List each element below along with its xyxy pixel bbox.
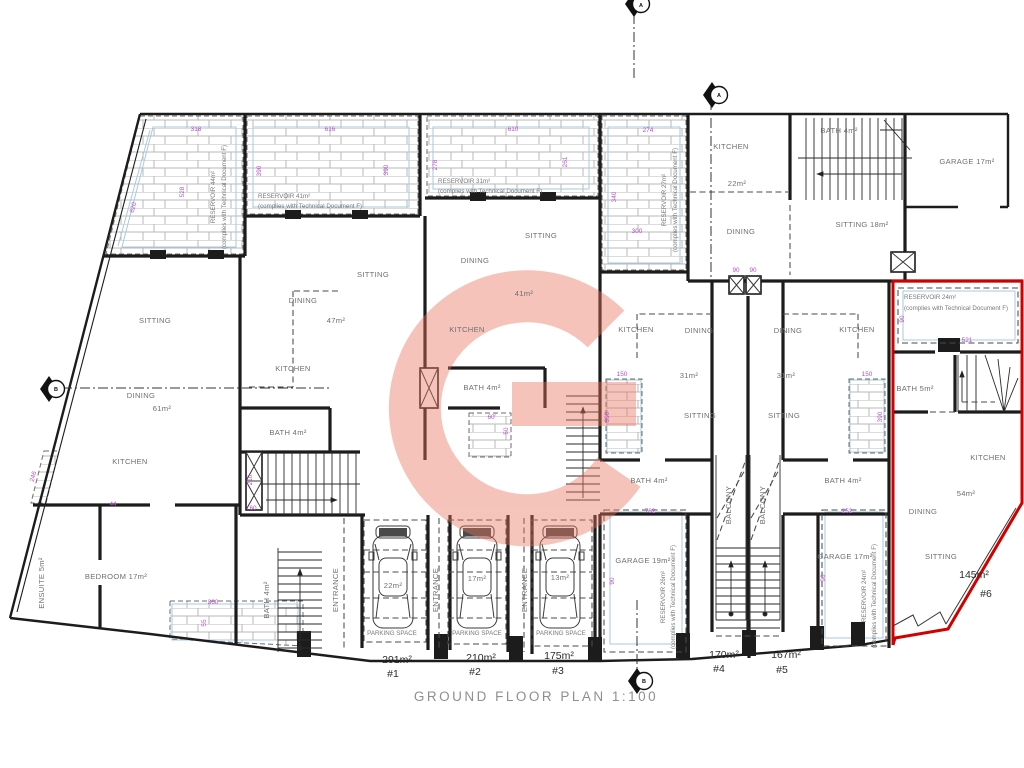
room-label: GARAGE 17m² [817, 552, 872, 561]
room-label: 54m² [957, 489, 976, 498]
dimension-label: 261 [562, 156, 569, 167]
annotation-label: (complies with Technical Document F) [221, 145, 228, 249]
dimension-label: 50 [503, 427, 510, 435]
annotation-label: PARKING SPACE [536, 630, 586, 637]
dimension-label: 44 [109, 501, 117, 508]
room-label: DINING [289, 296, 317, 305]
floor-plan-svg: SITTINGDINING61m²KITCHENBEDROOM 17m²ENSU… [0, 0, 1024, 768]
room-label: ENTRANCE [331, 568, 340, 612]
plot-number-3: #3 [552, 665, 564, 677]
room-label: KITCHEN [449, 325, 484, 334]
annotation-label: PARKING SPACE [367, 630, 417, 637]
plot-area-6: 145m² [959, 569, 989, 581]
dimension-label: 60 [487, 414, 495, 421]
room-label: ENSUITE 5m² [37, 557, 46, 609]
annotation-label: PARKING SPACE [452, 630, 502, 637]
plot-number-6: #6 [980, 588, 992, 600]
dimension-label: 610 [508, 126, 519, 133]
plot-area-3: 175m² [544, 650, 574, 662]
room-label: KITCHEN [618, 325, 653, 334]
dimension-label: 150 [862, 371, 873, 378]
room-label: 22m² [728, 179, 747, 188]
dimension-label: 150 [617, 371, 628, 378]
plot-number-4: #4 [713, 663, 725, 675]
room-label: BATH 4m² [630, 476, 667, 485]
dimension-label: 278 [432, 159, 439, 170]
dimension-label: 274 [643, 127, 654, 134]
dimension-label: 390 [877, 411, 884, 422]
plot-number-1: #1 [387, 668, 399, 680]
annotation-label: (complies with Technical Document F) [871, 544, 878, 648]
dimension-label: 300 [632, 228, 643, 235]
annotation-label: RESERVOIR 44m² [210, 171, 217, 223]
room-label: ENTRANCE [520, 568, 529, 612]
annotation-label: (complies with Technical Document F) [438, 188, 542, 195]
dimension-label: 55 [201, 619, 208, 627]
room-label: 47m² [327, 316, 346, 325]
dimension-label: 210 [247, 474, 254, 485]
room-label: 61m² [153, 404, 172, 413]
room-label: SITTING [925, 552, 957, 561]
room-label: 17m² [468, 574, 487, 583]
room-label: KITCHEN [839, 325, 874, 334]
room-label: BATH 5m² [896, 384, 933, 393]
dimension-label: 90 [732, 267, 740, 274]
dimension-label: 60 [249, 505, 257, 512]
room-label: BALCONY [724, 486, 733, 524]
plot-area-4: 170m² [709, 649, 739, 661]
room-label: 41m² [515, 289, 534, 298]
room-label: BATH 4m² [820, 126, 857, 135]
section-marker-letter: B [54, 387, 58, 393]
room-label: SITTING 18m² [835, 220, 888, 229]
room-label: KITCHEN [970, 453, 1005, 462]
annotation-label: RESERVOIR 31m² [438, 178, 490, 185]
annotation-label: (complies with Technical Document F) [258, 203, 362, 210]
room-label: KITCHEN [112, 457, 147, 466]
room-label: ENTRANCE [431, 568, 440, 612]
annotation-label: RESERVOIR 41m² [258, 193, 310, 200]
annotation-label: RESERVOIR 27m² [661, 174, 668, 226]
room-label: DINING [685, 326, 713, 335]
room-label: BATH 4m² [269, 428, 306, 437]
room-label: SITTING [768, 411, 800, 420]
room-label: BATH 4m² [463, 383, 500, 392]
annotation-label: (complies with Technical Document F) [904, 305, 1008, 312]
room-label: SITTING [139, 316, 171, 325]
dimension-label: 90 [899, 315, 906, 323]
room-label: 13m² [551, 573, 570, 582]
section-marker-letter: B [642, 679, 646, 685]
annotation-label: (complies with Technical Document F) [672, 148, 679, 252]
section-marker-letter: A [717, 93, 721, 99]
room-label: 31m² [777, 371, 796, 380]
room-label: SITTING [357, 270, 389, 279]
annotation-label: RESERVOIR 24m² [861, 570, 868, 622]
room-label: KITCHEN [275, 364, 310, 373]
dimension-label: 521 [962, 337, 973, 344]
room-label: DINING [727, 227, 755, 236]
room-label: SITTING [525, 231, 557, 240]
dimension-label: 252 [842, 508, 853, 515]
dimension-label: 90 [820, 574, 827, 582]
room-label: 31m² [680, 371, 699, 380]
plot-area-5: 167m² [771, 649, 801, 661]
dimension-label: 318 [191, 126, 202, 133]
dimension-label: 762 [645, 508, 656, 515]
annotation-label: RESERVOIR 26m² [660, 571, 667, 623]
dimension-label: 528 [179, 186, 186, 197]
room-label: GARAGE 17m² [939, 157, 994, 166]
annotation-label: (complies with Technical Document F) [670, 545, 677, 649]
plan-title: GROUND FLOOR PLAN 1:100 [414, 689, 658, 704]
room-label: BEDROOM 17m² [85, 572, 147, 581]
room-label: GARAGE 19m² [615, 556, 670, 565]
room-label: 22m² [384, 581, 403, 590]
dimension-label: 390 [256, 165, 263, 176]
dimension-label: 616 [325, 126, 336, 133]
dimension-label: 90 [609, 577, 616, 585]
plot-number-2: #2 [469, 666, 481, 678]
annotation-label: RESERVOIR 24m² [904, 294, 956, 301]
room-label: KITCHEN [713, 142, 748, 151]
section-marker-letter: A [639, 3, 643, 9]
room-label: SITTING [684, 411, 716, 420]
room-label: DINING [909, 507, 937, 516]
room-label: DINING [461, 256, 489, 265]
room-label: BALCONY [758, 486, 767, 524]
floor-plan-canvas: SITTINGDINING61m²KITCHENBEDROOM 17m²ENSU… [0, 0, 1024, 768]
dimension-label: 360 [208, 599, 219, 606]
dimension-label: 90 [749, 267, 757, 274]
plot-area-2: 210m² [466, 652, 496, 664]
room-label: DINING [774, 326, 802, 335]
plot-area-1: 291m² [382, 654, 412, 666]
dimension-label: 340 [611, 191, 618, 202]
dimension-label: 390 [383, 164, 390, 175]
room-label: DINING [127, 391, 155, 400]
room-label: BATH 4m² [824, 476, 861, 485]
plot-number-5: #5 [776, 664, 788, 676]
dimension-label: 390 [604, 411, 611, 422]
room-label: BATH 4m² [262, 581, 271, 618]
